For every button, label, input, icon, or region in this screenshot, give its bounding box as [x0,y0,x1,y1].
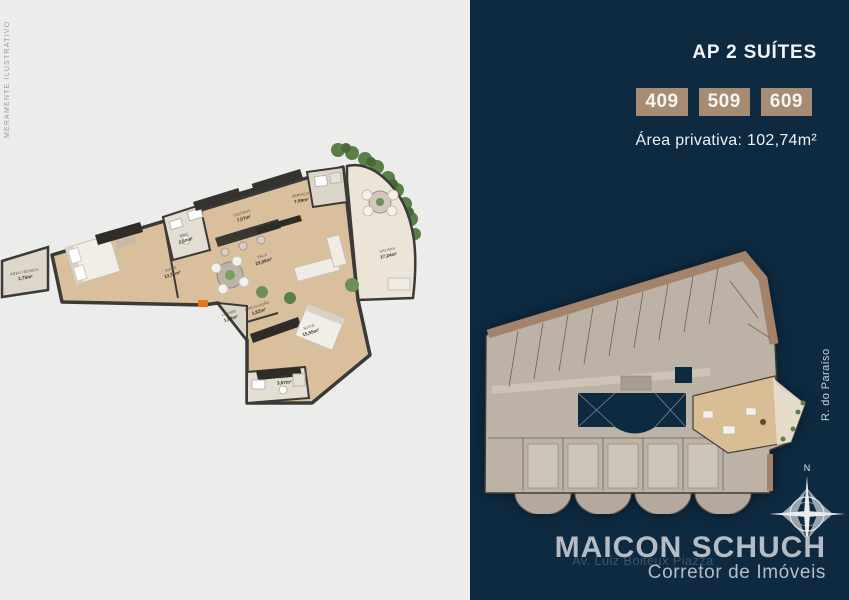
servico-room [307,167,347,207]
unit-badge-609: 609 [761,88,812,116]
lavabo-room [218,303,247,340]
entrance-marker [198,300,208,307]
page: MERAMENTE ILUSTRATIVO [0,0,849,600]
private-area-text: Área privativa: 102,74m² [635,132,817,150]
svg-text:BWC: BWC [279,375,289,380]
compass-north-label: N [804,463,811,473]
left-panel: MERAMENTE ILUSTRATIVO [0,0,470,600]
brand-tagline: Corretor de Imóveis [648,562,826,584]
unit-badges: 409 509 609 [636,88,812,116]
apartment-floorplan: ÁREA TÉCNICA 2,75m² SUÍTE 13,71m² BWC 2,… [0,140,440,420]
footprint-scallops [515,493,751,514]
unit-badge-509: 509 [699,88,750,116]
page-title: AP 2 SUÍTES [692,42,817,64]
watermark-text: MERAMENTE ILUSTRATIVO [4,18,11,138]
brand-name: MAICON SCHUCH [555,531,826,565]
unit-badge-409: 409 [636,88,687,116]
street-label: R. do Paraíso [820,326,832,421]
